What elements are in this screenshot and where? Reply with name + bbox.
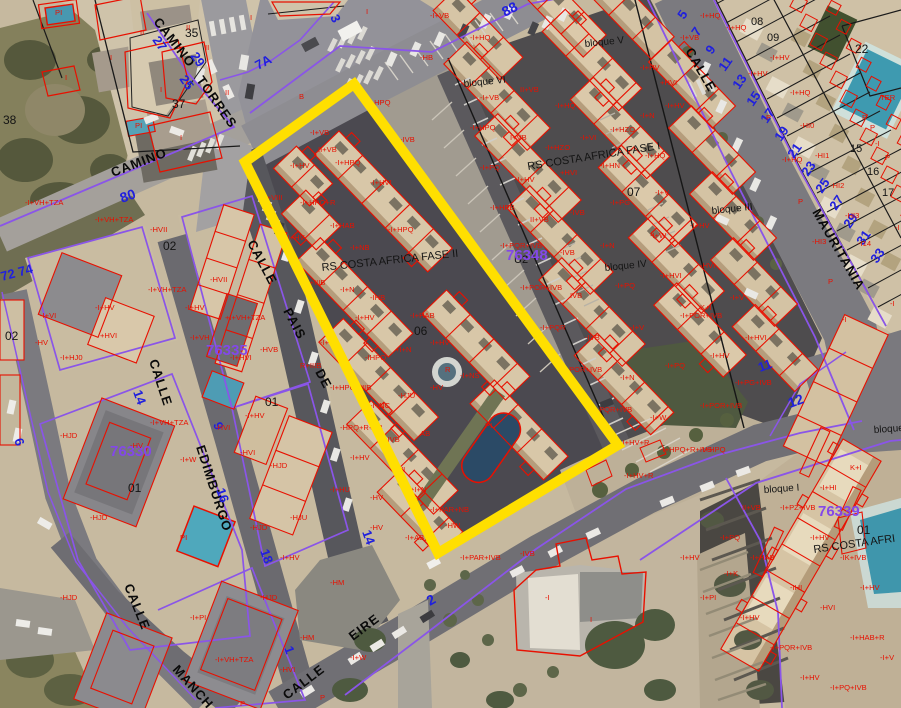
svg-text:-HJD: -HJD: [260, 593, 278, 602]
svg-text:-I: -I: [875, 139, 880, 148]
svg-text:-HJU: -HJU: [290, 513, 307, 522]
svg-text:I: I: [95, 3, 97, 12]
svg-text:-HI1: -HI1: [815, 151, 829, 160]
svg-text:-HJD: -HJD: [250, 523, 268, 532]
svg-text:-HI2: -HI2: [830, 181, 844, 190]
svg-text:-HI3: -HI3: [812, 237, 826, 246]
svg-text:-HJD: -HJD: [60, 431, 78, 440]
svg-text:I: I: [250, 13, 252, 22]
svg-text:P: P: [862, 113, 867, 122]
svg-text:-I+PQR: -I+PQR: [540, 323, 566, 332]
svg-text:-HVII: -HVII: [210, 275, 227, 284]
svg-text:-I+W: -I+W: [650, 231, 667, 240]
svg-text:-IVB: -IVB: [560, 248, 575, 257]
svg-text:-I+PQ: -I+PQ: [665, 361, 685, 370]
svg-text:-I+HPB: -I+HPB: [490, 203, 515, 212]
svg-text:-I+PG+IVB: -I+PG+IVB: [735, 378, 772, 387]
svg-text:-I+W: -I+W: [650, 413, 667, 422]
svg-text:-IVB: -IVB: [585, 333, 600, 342]
svg-text:-HW: -HW: [445, 521, 461, 530]
svg-text:-I+HV: -I+HV: [245, 411, 266, 420]
svg-text:I: I: [366, 7, 368, 16]
svg-text:09: 09: [767, 32, 779, 44]
svg-text:-HI3: -HI3: [845, 211, 859, 220]
svg-text:-I+HQ: -I+HQ: [470, 33, 491, 42]
svg-text:-I+HV: -I+HV: [430, 338, 451, 347]
svg-text:-I+VH+TZA: -I+VH+TZA: [215, 655, 254, 664]
svg-text:-HM: -HM: [330, 578, 344, 587]
svg-text:16: 16: [867, 166, 879, 178]
svg-text:-I+W: -I+W: [350, 653, 367, 662]
svg-text:-HVII: -HVII: [150, 225, 167, 234]
svg-text:PI: PI: [55, 8, 62, 17]
svg-text:-HVI: -HVI: [700, 261, 715, 270]
svg-text:-I+HZO: -I+HZO: [545, 143, 570, 152]
svg-text:01: 01: [128, 481, 142, 495]
svg-text:02: 02: [5, 329, 19, 343]
svg-text:-I+VH+TZA: -I+VH+TZA: [25, 198, 64, 207]
svg-text:02: 02: [163, 239, 177, 253]
svg-text:+I+N: +I+N: [395, 345, 411, 354]
svg-text:-I+HV: -I+HV: [800, 673, 821, 682]
svg-text:-I+HQ: -I+HQ: [700, 11, 721, 20]
svg-text:-I+HQ: -I+HQ: [555, 101, 576, 110]
svg-text:17: 17: [882, 187, 894, 199]
svg-text:-HV: -HV: [370, 523, 384, 532]
svg-text:P: P: [240, 699, 245, 708]
svg-text:-IVB: -IVB: [570, 208, 585, 217]
svg-text:-I+HV: -I+HV: [770, 53, 791, 62]
svg-text:-I+HV: -I+HV: [185, 303, 206, 312]
svg-text:-I+HPQ: -I+HPQ: [335, 158, 361, 167]
svg-text:-HVI: -HVI: [820, 603, 835, 612]
svg-text:P: P: [828, 277, 833, 286]
svg-text:I: I: [110, 53, 112, 62]
svg-text:-I+VH+TZA: -I+VH+TZA: [148, 285, 187, 294]
svg-text:-I+V: -I+V: [655, 188, 670, 197]
svg-text:-I+N: -I+N: [640, 111, 655, 120]
svg-text:-I+NB: -I+NB: [350, 243, 370, 252]
svg-text:II+VB: II+VB: [742, 503, 761, 512]
svg-text:-I+HJ0: -I+HJ0: [60, 353, 83, 362]
svg-text:+HVI: +HVI: [660, 78, 677, 87]
svg-text:-I+HI: -I+HI: [820, 483, 837, 492]
svg-text:-I+VI: -I+VI: [580, 133, 596, 142]
svg-text:-HVI: -HVI: [215, 423, 230, 432]
svg-text:P: P: [885, 153, 890, 162]
svg-text:-I+HAB: -I+HAB: [750, 553, 775, 562]
svg-text:76339: 76339: [818, 503, 860, 520]
svg-text:-I+HVI: -I+HVI: [660, 271, 682, 280]
svg-text:-I+POR+IVB: -I+POR+IVB: [520, 283, 562, 292]
svg-text:-HI0: -HI0: [800, 121, 814, 130]
svg-text:-I+VH: -I+VH: [190, 333, 210, 342]
svg-text:37: 37: [172, 97, 186, 111]
svg-text:-I+HV: -I+HV: [680, 553, 701, 562]
svg-text:-I+HPQ+R+IVS: -I+HPQ+R+IVS: [660, 445, 712, 454]
svg-text:-I+PQ: -I+PQ: [615, 281, 635, 290]
svg-text:-IVB: -IVB: [520, 549, 535, 558]
svg-text:-I+NS: -I+NS: [460, 371, 480, 380]
svg-text:-I: -I: [890, 299, 895, 308]
svg-text:II: II: [140, 28, 144, 37]
svg-text:K+I: K+I: [700, 303, 712, 312]
svg-text:-I+HV: -I+HV: [290, 161, 311, 170]
svg-text:-I+HQ: -I+HQ: [790, 88, 811, 97]
svg-text:-I+HQ: -I+HQ: [782, 155, 803, 164]
svg-text:-I+NC: -I+NC: [370, 401, 391, 410]
svg-text:K+I: K+I: [850, 463, 862, 472]
svg-text:-I: -I: [842, 315, 847, 324]
svg-text:-I+HV: -I+HV: [515, 175, 536, 184]
svg-text:I: I: [590, 615, 592, 624]
svg-text:P: P: [320, 693, 325, 702]
svg-text:-IK+IVB: -IK+IVB: [840, 553, 866, 562]
svg-text:-I+VB: -I+VB: [680, 33, 699, 42]
svg-text:-I+HV: -I+HV: [280, 553, 301, 562]
svg-text:-I+HV: -I+HV: [350, 453, 371, 462]
svg-text:+HVI: +HVI: [560, 168, 577, 177]
svg-text:-IHPQ: -IHPQ: [365, 353, 386, 362]
svg-text:-I+HAB: -I+HAB: [410, 311, 435, 320]
svg-text:-I+PAR+IVB: -I+PAR+IVB: [460, 553, 501, 562]
svg-text:-HJD: -HJD: [270, 461, 288, 470]
svg-text:-I+VB: -I+VB: [480, 93, 499, 102]
svg-text:-I+HPQ+R: -I+HPQ+R: [300, 198, 336, 207]
svg-text:B: B: [299, 92, 304, 101]
svg-text:-I+PQR+IVB: -I+PQR+IVB: [770, 643, 812, 652]
svg-text:-I+HAB: -I+HAB: [330, 221, 355, 230]
svg-text:-I+V: -I+V: [630, 323, 645, 332]
svg-text:II: II: [225, 88, 229, 97]
svg-text:-I+HPQ: -I+HPQ: [388, 225, 414, 234]
svg-text:-I+HPQ: -I+HPQ: [470, 123, 496, 132]
svg-text:07: 07: [627, 185, 641, 199]
svg-text:-HVI: -HVI: [240, 448, 255, 457]
svg-text:-I+HQ: -I+HQ: [645, 151, 666, 160]
svg-text:-I+HU: -I+HU: [330, 485, 350, 494]
svg-text:-I+HN: -I+HN: [600, 161, 620, 170]
svg-text:-I: -I: [895, 223, 900, 232]
svg-text:-I+HVI: -I+HVI: [745, 333, 767, 342]
svg-text:II+VB: II+VB: [520, 85, 539, 94]
svg-text:-I+N: -I+N: [600, 241, 615, 250]
svg-text:AB: AB: [420, 429, 430, 438]
svg-text:-I+HV: -I+HV: [665, 101, 686, 110]
svg-text:-HV: -HV: [430, 383, 444, 392]
svg-text:-I+N: -I+N: [340, 285, 355, 294]
svg-text:-I+V: -I+V: [730, 293, 745, 302]
svg-text:-I+HV: -I+HV: [640, 63, 661, 72]
svg-text:-HVB: -HVB: [260, 345, 278, 354]
svg-text:-I+PQ: -I+PQ: [720, 533, 740, 542]
svg-text:I: I: [180, 133, 182, 142]
svg-text:-HB: -HB: [420, 53, 433, 62]
svg-text:-IHB: -IHB: [370, 293, 385, 302]
svg-text:-I+K: -I+K: [724, 569, 738, 578]
svg-text:-I+VH+TZA: -I+VH+TZA: [95, 215, 134, 224]
svg-text:01: 01: [857, 523, 871, 537]
svg-text:-HV: -HV: [370, 493, 384, 502]
svg-text:-I+HV: -I+HV: [710, 351, 731, 360]
svg-text:II+VB: II+VB: [318, 145, 337, 154]
svg-text:-HVI: -HVI: [280, 665, 295, 674]
svg-text:-I14: -I14: [858, 239, 871, 248]
svg-text:-I+PI: -I+PI: [190, 613, 206, 622]
svg-text:-I+VB: -I+VB: [310, 128, 329, 137]
svg-text:-I+N: -I+N: [620, 373, 635, 382]
svg-text:-I+PAR+NB: -I+PAR+NB: [430, 505, 469, 514]
svg-text:-I+V: -I+V: [880, 653, 895, 662]
svg-text:I: I: [65, 73, 67, 82]
svg-text:-I+AB: -I+AB: [405, 533, 424, 542]
svg-text:-I+PZ+IVB: -I+PZ+IVB: [780, 503, 815, 512]
svg-text:+I+VH+TZA: +I+VH+TZA: [225, 313, 266, 322]
svg-text:-I+HV: -I+HV: [690, 221, 711, 230]
svg-text:-I+PQR+IVB: -I+PQR+IVB: [500, 241, 542, 250]
svg-text:PI: PI: [135, 121, 142, 130]
svg-text:PI: PI: [180, 533, 187, 542]
svg-text:-I+HV+R: -I+HV+R: [624, 471, 654, 480]
svg-text:-I+VH+TZA: -I+VH+TZA: [150, 418, 189, 427]
svg-text:-I+PQ: -I+PQ: [480, 163, 500, 172]
svg-text:-HJD: -HJD: [90, 513, 108, 522]
svg-text:+HVI: +HVI: [100, 331, 117, 340]
svg-text:38: 38: [3, 113, 17, 127]
svg-text:-I+PG: -I+PG: [610, 198, 630, 207]
svg-text:P: P: [766, 113, 771, 122]
svg-text:-I+HV: -I+HV: [748, 69, 769, 78]
svg-text:-I+HVI: -I+HVI: [370, 178, 392, 187]
svg-text:-I: -I: [545, 593, 550, 602]
svg-text:-HV: -HV: [35, 338, 49, 347]
svg-text:-I+HV: -I+HV: [95, 303, 116, 312]
svg-text:I: I: [160, 85, 162, 94]
svg-text:-HV: -HV: [130, 441, 144, 450]
svg-text:-HJD: -HJD: [60, 593, 78, 602]
svg-text:-I+HV: -I+HV: [810, 533, 831, 542]
svg-text:bloque: bloque: [873, 423, 901, 436]
svg-text:PI: PI: [485, 421, 492, 430]
svg-text:II: II: [205, 43, 209, 52]
svg-text:22: 22: [855, 42, 869, 56]
svg-text:-I+POR+IVB: -I+POR+IVB: [700, 401, 742, 410]
svg-text:IVB: IVB: [570, 291, 582, 300]
svg-text:II+VB: II+VB: [530, 215, 549, 224]
svg-text:-I+HZO: -I+HZO: [610, 125, 635, 134]
svg-text:P: P: [798, 197, 803, 206]
svg-text:-I+PI: -I+PI: [700, 593, 716, 602]
svg-text:-I+VB: -I+VB: [430, 11, 449, 20]
svg-text:II: II: [186, 23, 190, 32]
svg-text:-I+HQ: -I+HQ: [726, 23, 747, 32]
svg-text:-HJU: -HJU: [398, 391, 415, 400]
svg-text:06: 06: [414, 324, 428, 338]
svg-text:-I+W: -I+W: [180, 455, 197, 464]
svg-text:TER: TER: [880, 93, 896, 102]
svg-text:P: P: [870, 123, 875, 132]
svg-text:-I+HVI: -I+HVI: [230, 353, 252, 362]
svg-text:R: R: [445, 365, 451, 374]
svg-text:I+VB: I+VB: [510, 133, 527, 142]
svg-text:-I+POR+IVB: -I+POR+IVB: [680, 311, 722, 320]
svg-text:-HM: -HM: [300, 633, 314, 642]
svg-text:-I+VI: -I+VI: [40, 311, 56, 320]
svg-text:-IHI: -IHI: [790, 583, 802, 592]
svg-text:-I+PQ+IVB: -I+PQ+IVB: [830, 683, 867, 692]
svg-text:01: 01: [265, 395, 279, 409]
svg-text:-I+HV: -I+HV: [740, 613, 761, 622]
svg-text:08: 08: [751, 16, 763, 28]
svg-text:-I+HAB+R: -I+HAB+R: [850, 633, 885, 642]
svg-text:-I+HV: -I+HV: [355, 313, 376, 322]
svg-text:R+IIIB: R+IIIB: [300, 361, 321, 370]
svg-text:15: 15: [850, 143, 862, 155]
svg-text:-I+HV: -I+HV: [860, 583, 881, 592]
